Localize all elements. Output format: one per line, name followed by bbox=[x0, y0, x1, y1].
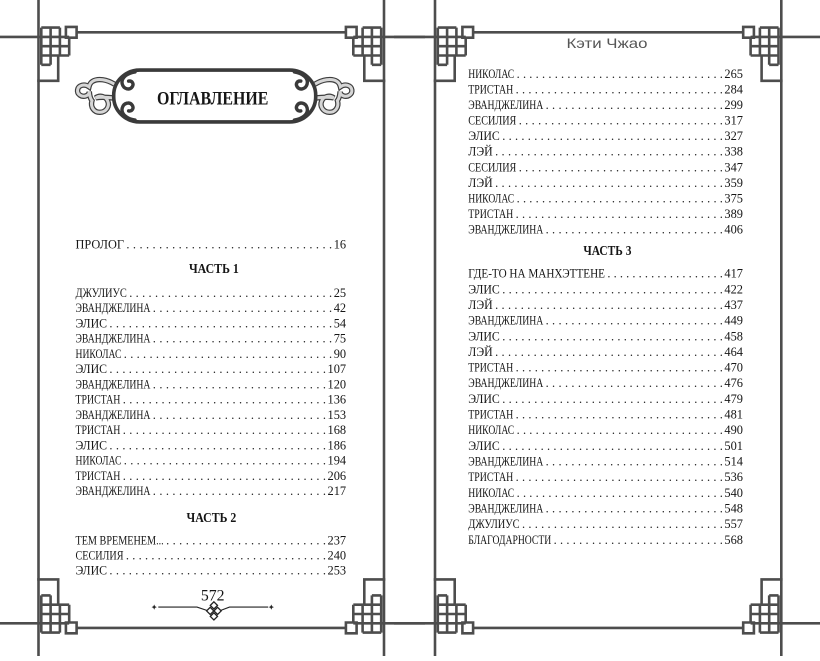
svg-text:ЭВАНДЖЕЛИНА: ЭВАНДЖЕЛИНА bbox=[76, 301, 151, 315]
svg-text:ЭВАНДЖЕЛИНА: ЭВАНДЖЕЛИНА bbox=[76, 484, 151, 498]
svg-text:ЭЛИС: ЭЛИС bbox=[76, 563, 108, 577]
svg-text:42: 42 bbox=[334, 301, 346, 315]
svg-text:ЭВАНДЖЕЛИНА: ЭВАНДЖЕЛИНА bbox=[468, 455, 543, 469]
svg-text:568: 568 bbox=[724, 533, 743, 547]
svg-text:572: 572 bbox=[201, 588, 225, 605]
svg-text:186: 186 bbox=[328, 438, 347, 452]
svg-text:ТРИСТАН: ТРИСТАН bbox=[468, 361, 513, 375]
svg-text:ЧАСТЬ 2: ЧАСТЬ 2 bbox=[187, 510, 237, 525]
svg-text:ДЖУЛИУС: ДЖУЛИУС bbox=[76, 286, 127, 300]
svg-text:375: 375 bbox=[724, 191, 743, 205]
svg-text:16: 16 bbox=[334, 237, 346, 251]
svg-text:ЭВАНДЖЕЛИНА: ЭВАНДЖЕЛИНА bbox=[76, 332, 151, 346]
svg-text:СЕСИЛИЯ: СЕСИЛИЯ bbox=[468, 114, 516, 128]
svg-text:ТРИСТАН: ТРИСТАН bbox=[468, 470, 513, 484]
svg-text:476: 476 bbox=[724, 376, 743, 390]
svg-text:557: 557 bbox=[724, 517, 743, 531]
svg-text:ЭЛИС: ЭЛИС bbox=[76, 362, 108, 376]
svg-text:ЛЭЙ: ЛЭЙ bbox=[468, 176, 492, 190]
svg-text:253: 253 bbox=[328, 563, 347, 577]
svg-text:299: 299 bbox=[724, 98, 743, 112]
svg-text:265: 265 bbox=[724, 67, 743, 81]
svg-text:ЛЭЙ: ЛЭЙ bbox=[468, 145, 492, 159]
svg-text:ЭЛИС: ЭЛИС bbox=[76, 438, 108, 452]
svg-text:168: 168 bbox=[328, 423, 347, 437]
svg-text:25: 25 bbox=[334, 286, 346, 300]
svg-text:449: 449 bbox=[724, 314, 743, 328]
svg-text:237: 237 bbox=[328, 533, 347, 547]
svg-text:..............................: ................................... bbox=[502, 329, 723, 343]
svg-text:ЭВАНДЖЕЛИНА: ЭВАНДЖЕЛИНА bbox=[468, 223, 543, 237]
svg-text:ГДЕ-ТО НА МАНХЭТТЕНЕ: ГДЕ-ТО НА МАНХЭТТЕНЕ bbox=[468, 267, 605, 281]
svg-text:90: 90 bbox=[334, 347, 346, 361]
svg-text:284: 284 bbox=[724, 82, 743, 96]
svg-text:194: 194 bbox=[328, 454, 347, 468]
svg-text:490: 490 bbox=[724, 423, 743, 437]
svg-text:СЕСИЛИЯ: СЕСИЛИЯ bbox=[468, 160, 516, 174]
svg-text:ТРИСТАН: ТРИСТАН bbox=[468, 408, 513, 422]
svg-text:406: 406 bbox=[724, 223, 743, 237]
svg-text:НИКОЛАС: НИКОЛАС bbox=[76, 347, 122, 361]
svg-text:470: 470 bbox=[724, 361, 743, 375]
svg-text:479: 479 bbox=[724, 392, 743, 406]
svg-text:ПРОЛОГ: ПРОЛОГ bbox=[76, 237, 125, 251]
svg-text:..............................: ................................... bbox=[502, 392, 723, 406]
svg-text:..............................: ................................... bbox=[502, 439, 723, 453]
svg-text:ЭВАНДЖЕЛИНА: ЭВАНДЖЕЛИНА bbox=[468, 376, 543, 390]
svg-text:206: 206 bbox=[328, 469, 347, 483]
svg-text:ЭВАНДЖЕЛИНА: ЭВАНДЖЕЛИНА bbox=[468, 502, 543, 516]
svg-text:417: 417 bbox=[724, 267, 743, 281]
svg-text:458: 458 bbox=[724, 329, 743, 343]
svg-text:ЭЛИС: ЭЛИС bbox=[468, 392, 500, 406]
svg-text:Кэти Чжао: Кэти Чжао bbox=[567, 36, 648, 51]
svg-text:БЛАГОДАРНОСТИ: БЛАГОДАРНОСТИ bbox=[468, 533, 551, 547]
svg-text:347: 347 bbox=[724, 160, 743, 174]
svg-text:..............................: ................................... bbox=[502, 282, 723, 296]
svg-text:ЛЭЙ: ЛЭЙ bbox=[468, 345, 492, 359]
svg-text:ЭЛИС: ЭЛИС bbox=[468, 282, 500, 296]
svg-text:..............................: ................................... bbox=[109, 316, 332, 330]
svg-text:359: 359 bbox=[724, 176, 743, 190]
svg-text:422: 422 bbox=[724, 282, 743, 296]
svg-text:ЭЛИС: ЭЛИС bbox=[468, 329, 500, 343]
svg-text:317: 317 bbox=[724, 114, 743, 128]
svg-text:217: 217 bbox=[328, 484, 347, 498]
svg-text:ТРИСТАН: ТРИСТАН bbox=[76, 423, 121, 437]
svg-text:338: 338 bbox=[724, 145, 743, 159]
svg-text:75: 75 bbox=[334, 332, 346, 346]
svg-text:ЭЛИС: ЭЛИС bbox=[468, 129, 500, 143]
svg-text:ТРИСТАН: ТРИСТАН bbox=[468, 207, 513, 221]
svg-text:514: 514 bbox=[724, 455, 743, 469]
svg-text:ТЕМ ВРЕМЕНЕМ...: ТЕМ ВРЕМЕНЕМ... bbox=[76, 533, 164, 547]
svg-text:ЛЭЙ: ЛЭЙ bbox=[468, 298, 492, 312]
svg-text:НИКОЛАС: НИКОЛАС bbox=[76, 454, 122, 468]
svg-text:389: 389 bbox=[724, 207, 743, 221]
svg-text:ЧАСТЬ 3: ЧАСТЬ 3 bbox=[583, 243, 631, 258]
svg-text:437: 437 bbox=[724, 298, 743, 312]
svg-text:120: 120 bbox=[328, 377, 347, 391]
svg-text:ЭЛИС: ЭЛИС bbox=[468, 439, 500, 453]
svg-text:..............................: ................................... bbox=[502, 129, 723, 143]
svg-text:464: 464 bbox=[724, 345, 743, 359]
svg-text:ЧАСТЬ 1: ЧАСТЬ 1 bbox=[189, 261, 239, 276]
svg-text:НИКОЛАС: НИКОЛАС bbox=[468, 67, 514, 81]
svg-text:240: 240 bbox=[328, 548, 347, 562]
svg-text:136: 136 bbox=[328, 393, 347, 407]
svg-text:ЭВАНДЖЕЛИНА: ЭВАНДЖЕЛИНА bbox=[76, 408, 151, 422]
svg-text:СЕСИЛИЯ: СЕСИЛИЯ bbox=[76, 548, 124, 562]
svg-text:ЭЛИС: ЭЛИС bbox=[76, 316, 108, 330]
svg-text:ЭВАНДЖЕЛИНА: ЭВАНДЖЕЛИНА bbox=[76, 377, 151, 391]
svg-text:327: 327 bbox=[724, 129, 743, 143]
svg-text:ТРИСТАН: ТРИСТАН bbox=[468, 82, 513, 96]
svg-text:ОГЛАВЛЕНИЕ: ОГЛАВЛЕНИЕ bbox=[157, 89, 268, 109]
svg-text:54: 54 bbox=[334, 316, 346, 330]
svg-text:ЭВАНДЖЕЛИНА: ЭВАНДЖЕЛИНА bbox=[468, 98, 543, 112]
svg-text:ЭВАНДЖЕЛИНА: ЭВАНДЖЕЛИНА bbox=[468, 314, 543, 328]
svg-text:ТРИСТАН: ТРИСТАН bbox=[76, 393, 121, 407]
svg-text:107: 107 bbox=[328, 362, 347, 376]
svg-text:ДЖУЛИУС: ДЖУЛИУС bbox=[468, 517, 519, 531]
svg-text:НИКОЛАС: НИКОЛАС bbox=[468, 486, 514, 500]
svg-text:548: 548 bbox=[724, 502, 743, 516]
svg-text:НИКОЛАС: НИКОЛАС bbox=[468, 423, 514, 437]
svg-text:ТРИСТАН: ТРИСТАН bbox=[76, 469, 121, 483]
svg-text:НИКОЛАС: НИКОЛАС bbox=[468, 191, 514, 205]
svg-text:540: 540 bbox=[724, 486, 743, 500]
svg-text:481: 481 bbox=[724, 408, 743, 422]
svg-text:501: 501 bbox=[724, 439, 743, 453]
svg-text:536: 536 bbox=[724, 470, 743, 484]
svg-text:153: 153 bbox=[328, 408, 347, 422]
